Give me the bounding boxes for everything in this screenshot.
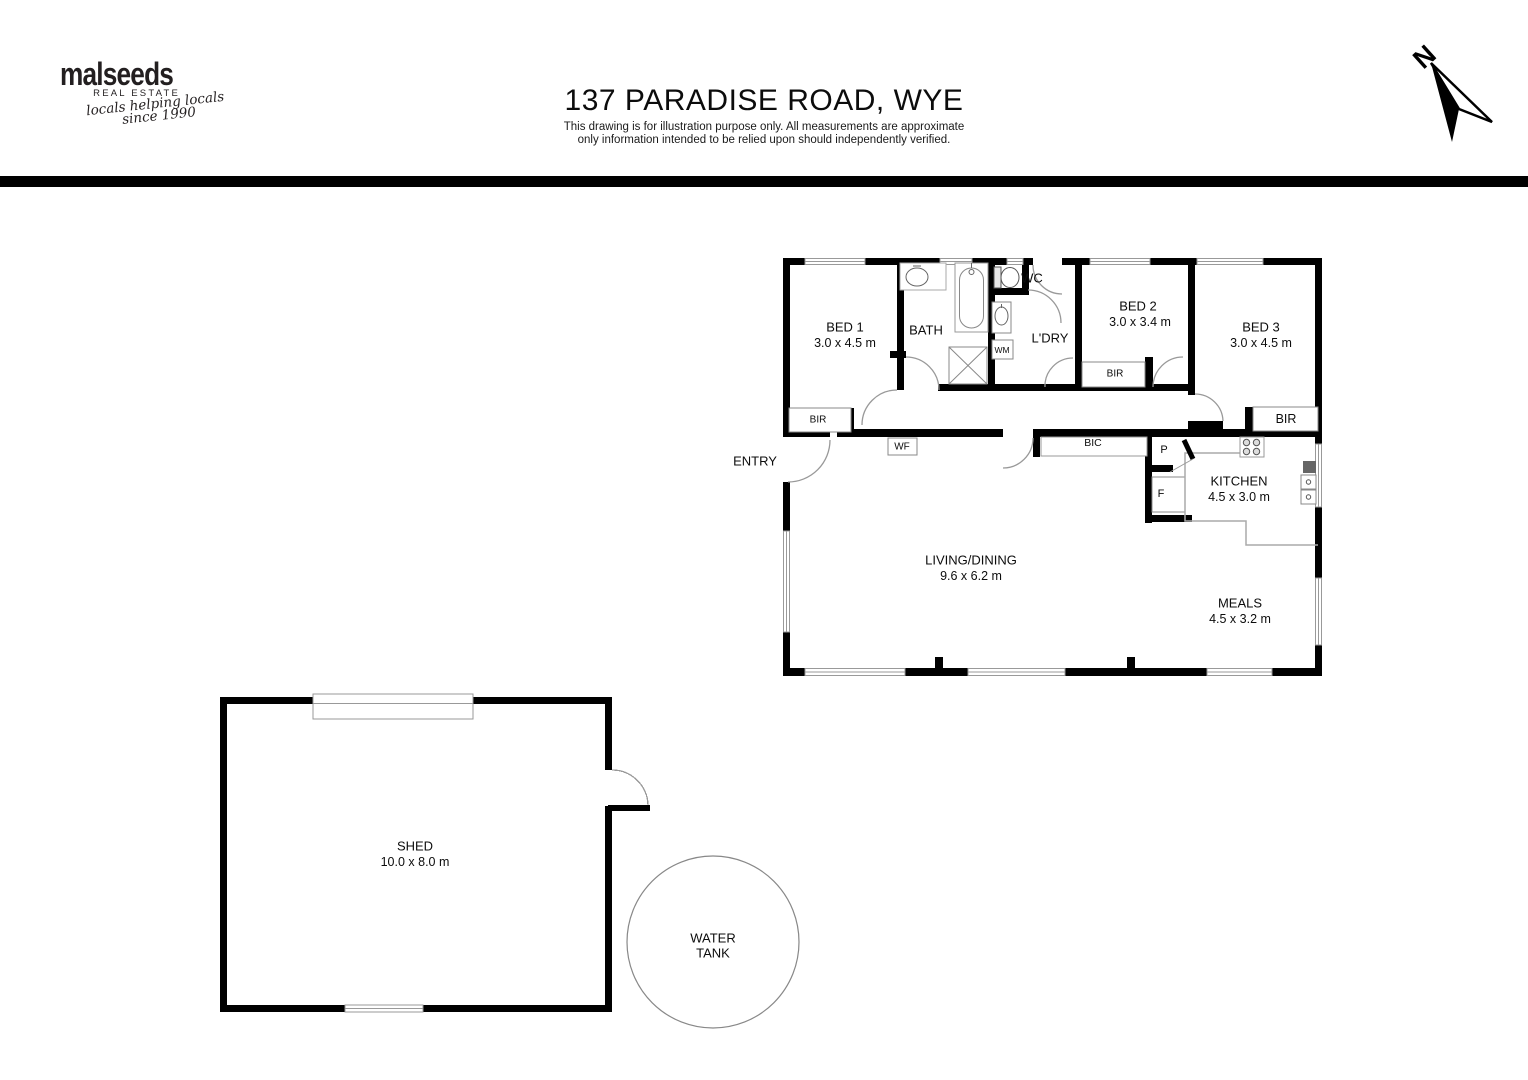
room-dims-bed1: 3.0 x 4.5 m <box>814 336 876 350</box>
room-dims-shed: 10.0 x 8.0 m <box>381 855 450 869</box>
sink-bowl-2 <box>1301 490 1316 504</box>
laundry-door-arc <box>1045 358 1073 387</box>
toilet-cistern <box>994 267 1001 288</box>
shed-door-arc <box>612 770 648 805</box>
room-label-bed3: BED 3 <box>1242 320 1280 335</box>
room-label-shed: SHED <box>397 839 433 854</box>
wc-door-arc <box>1028 290 1061 323</box>
label-bir-bed3: BIR <box>1276 412 1297 426</box>
north-arrow-icon: N <box>1407 39 1492 142</box>
room-label-bath: BATH <box>909 323 943 338</box>
label-bir-bed2: BIR <box>1107 369 1124 380</box>
label-bic: BIC <box>1084 437 1102 449</box>
label-pantry: P <box>1160 444 1167 456</box>
floorplan-page: malseeds REAL ESTATE locals helping loca… <box>0 0 1528 1080</box>
entry-door-arc <box>788 440 830 482</box>
bed2-door-arc <box>1153 357 1183 387</box>
room-dims-bed2: 3.0 x 3.4 m <box>1109 315 1171 329</box>
shed-door-leaf <box>608 805 650 811</box>
room-label-kitchen: KITCHEN <box>1210 474 1267 489</box>
room-dims-living: 9.6 x 6.2 m <box>940 569 1002 583</box>
bed1-door-arc <box>862 390 897 425</box>
hall-door-arc <box>1003 438 1033 468</box>
label-washing-machine: WM <box>994 345 1009 355</box>
shed-outline <box>220 694 650 1012</box>
room-label-living: LIVING/DINING <box>925 553 1017 568</box>
sink-bowl-1 <box>1301 475 1316 489</box>
vanity-basin <box>906 268 928 286</box>
toilet-bowl <box>1001 268 1019 288</box>
cooktop <box>1240 437 1264 457</box>
bathtub-inner <box>960 268 984 328</box>
label-fridge: F <box>1158 488 1165 500</box>
room-label-entry: ENTRY <box>733 454 777 469</box>
door-arcs <box>788 265 1223 482</box>
bath-door-arc <box>906 357 939 390</box>
label-wood-fire: WF <box>894 442 910 453</box>
bed3-door-arc <box>1195 394 1223 421</box>
room-label-laundry: L'DRY <box>1032 331 1069 346</box>
shed-roller-door <box>313 694 473 719</box>
label-bir-bed1: BIR <box>810 415 827 426</box>
room-dims-bed3: 3.0 x 4.5 m <box>1230 336 1292 350</box>
label-water-tank-1: WATER <box>690 931 736 946</box>
room-dims-meals: 4.5 x 3.2 m <box>1209 612 1271 626</box>
room-label-bed1: BED 1 <box>826 320 864 335</box>
room-label-wc: WC <box>1021 271 1043 286</box>
room-label-bed2: BED 2 <box>1119 299 1157 314</box>
label-water-tank-2: TANK <box>696 946 730 961</box>
room-label-meals: MEALS <box>1218 596 1262 611</box>
sink-drainer <box>1303 461 1316 473</box>
room-dims-kitchen: 4.5 x 3.0 m <box>1208 490 1270 504</box>
floorplan-drawing: N <box>0 0 1528 1080</box>
